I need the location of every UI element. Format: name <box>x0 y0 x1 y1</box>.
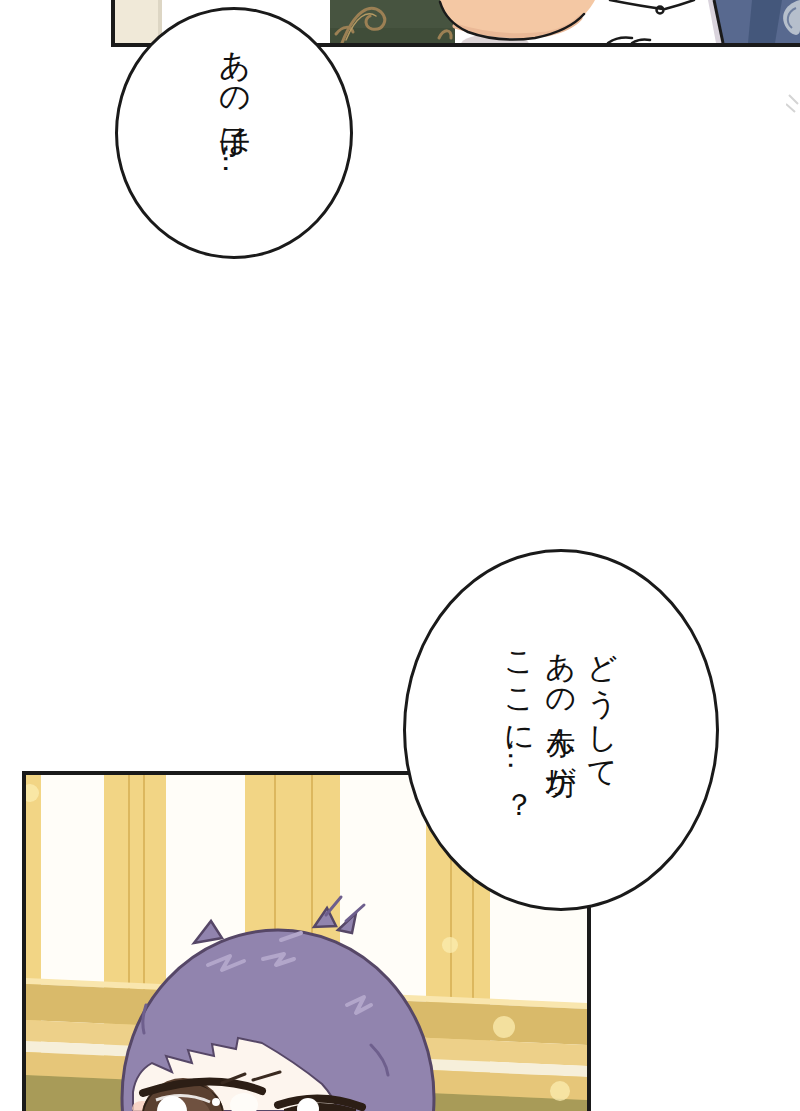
speech-line: どうして <box>586 632 619 777</box>
speech-bubble-2-text: どうして あの赤ん坊が ここに…？ <box>499 552 623 805</box>
right-eye <box>278 1098 362 1111</box>
comic-page: あの子は… どうして あの赤ん坊が ここに…？ <box>0 0 800 1111</box>
speech-line: ここに…？ <box>503 632 536 805</box>
eye-glint <box>212 1098 220 1106</box>
blue-garment <box>708 0 800 43</box>
speech-bubble-1-text: あの子は… <box>213 10 256 176</box>
speech-bubble-2: どうして あの赤ん坊が ここに…？ <box>403 549 719 911</box>
green-fabric <box>330 0 455 43</box>
edge-artifact <box>786 90 800 116</box>
speech-line: あの赤ん坊が <box>545 632 578 781</box>
cream-hair-fabric <box>115 0 162 43</box>
speech-bubble-1: あの子は… <box>115 7 353 259</box>
